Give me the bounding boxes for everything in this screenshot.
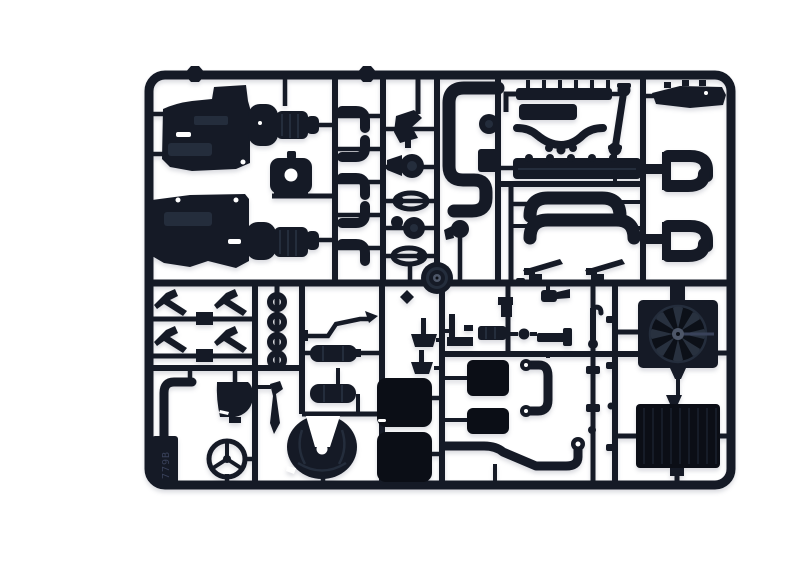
ejector-pin-mark: [704, 91, 708, 95]
wiper-arm: [154, 289, 187, 316]
air-tank: [310, 345, 361, 362]
linkage-ball: [519, 329, 530, 340]
gate-knob: [184, 66, 206, 82]
silencer-pipe: [530, 198, 620, 216]
silencer-pipe: [530, 220, 634, 238]
ejector-pin-mark: [234, 198, 239, 203]
sprue-tag-text: 779B: [161, 451, 172, 479]
crankshaft-pulley: [421, 262, 453, 294]
belt-pulley-set: [387, 110, 427, 264]
steering-wheel: [209, 441, 245, 477]
engine-pad: [467, 408, 509, 434]
sprue-id-tag: 779B: [152, 436, 178, 484]
chassis-cross-member: [652, 80, 726, 108]
runner-junction: [196, 312, 213, 325]
ejector-pin-mark: [241, 160, 246, 165]
fifth-wheel-coupling: [286, 415, 357, 479]
water-pump: [479, 114, 499, 134]
ejector-pin-mark: [176, 132, 191, 137]
ejector-pin-mark: [378, 419, 386, 422]
exhaust-elbow-pair: [644, 152, 707, 190]
mounting-bracket: [411, 350, 433, 374]
ejector-pin-mark: [258, 121, 262, 125]
coolant-hose-loop: [520, 359, 548, 417]
cab-corner-panel: [217, 382, 253, 423]
flexible-exhaust-pipe: [444, 437, 585, 466]
brake-line: [301, 311, 378, 341]
ejector-pin-mark: [176, 198, 181, 203]
mounting-bracket: [411, 318, 437, 347]
hose-elbows: [342, 111, 365, 261]
gear-lever: [270, 381, 283, 434]
hose-elbow: [342, 244, 365, 261]
engine-pad: [467, 360, 509, 396]
air-tank: [310, 384, 356, 403]
exhaust-elbow-pair: [644, 222, 707, 260]
auxiliary-pump: [444, 220, 469, 240]
sprue-image: 779B: [40, 16, 800, 546]
radiator-core: [636, 395, 720, 476]
seat-cushion: [377, 432, 432, 482]
radiator-fan: [638, 286, 718, 379]
engine-block-half-lower: [152, 194, 319, 268]
valve-cover: [519, 104, 577, 120]
wiper-arm: [214, 326, 247, 353]
ejector-pin-mark: [228, 239, 241, 244]
hose-elbow: [342, 111, 365, 128]
exhaust-manifold: [517, 128, 603, 155]
mount-diamond: [400, 290, 414, 304]
gate-knob: [356, 66, 378, 82]
cylinder-head: [513, 154, 641, 179]
seat-cushion: [377, 378, 432, 427]
junction-box: [478, 149, 500, 172]
sprue-product-photo: 779B: [40, 16, 800, 546]
ejector-pin-mark: [286, 466, 296, 474]
runner-junction: [196, 349, 213, 362]
engine-mount-bracket: [270, 151, 312, 198]
wiper-arm: [214, 289, 247, 316]
wiper-arm: [154, 326, 187, 353]
hose-elbow: [342, 178, 365, 195]
